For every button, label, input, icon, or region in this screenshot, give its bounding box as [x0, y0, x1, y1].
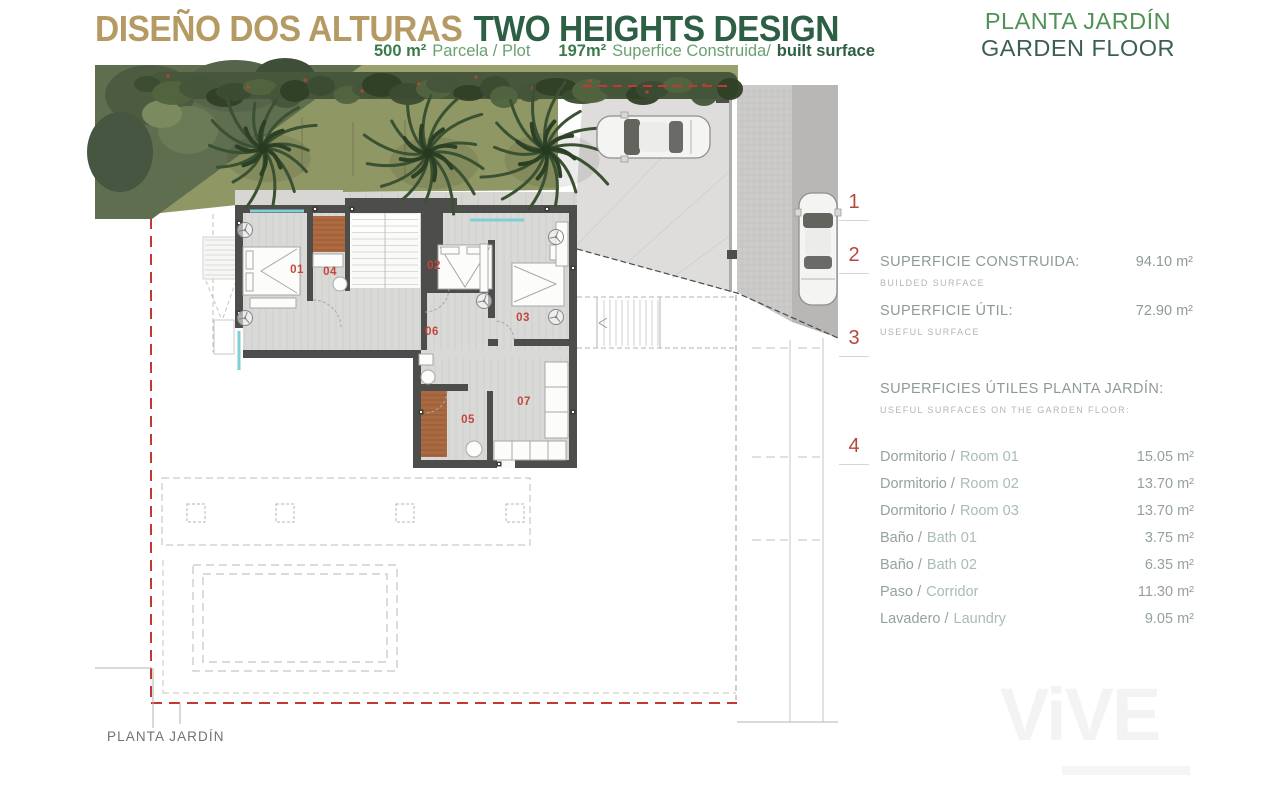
exterior-stair-right: [577, 297, 737, 348]
house: [235, 198, 577, 468]
built-surface-label: SUPERFICIE CONSTRUIDA:: [880, 254, 1080, 270]
mirror: [795, 209, 801, 216]
shower-symbol-bath-05: [421, 370, 435, 384]
floor-title-spanish: PLANTA JARDÍN: [960, 8, 1196, 35]
room-label-01: 01: [290, 264, 304, 276]
pool-dashed: [193, 565, 397, 671]
mirror: [621, 112, 628, 118]
built-area-label-en: built surface: [777, 42, 875, 60]
windshield: [624, 119, 640, 155]
useful-surfaces-section-sublabel: USEFUL SURFACES ON THE GARDEN FLOOR:: [880, 405, 1130, 415]
room-label-06: 06: [425, 326, 439, 338]
useful-surfaces-section-label: SUPERFICIES ÚTILES PLANTA JARDÍN:: [880, 381, 1164, 397]
pergola-dashed: [162, 478, 530, 545]
plot-area-value: 500 m²: [374, 42, 426, 60]
legend-marker-2: 2: [839, 244, 869, 274]
legend-marker-1: 1: [839, 191, 869, 221]
surface-row-room-03: Dormitorio /Room 0313.70 m²: [880, 503, 1194, 519]
room-label-03: 03: [516, 312, 530, 324]
surface-row-room-02: Dormitorio /Room 0213.70 m²: [880, 476, 1194, 492]
surface-row-corridor: Paso /Corridor11.30 m²: [880, 584, 1194, 600]
closet-room-02: [480, 244, 488, 292]
car-driveway: [597, 112, 710, 162]
watermark-logo: ViVE: [1000, 672, 1159, 757]
room-label-02: 02: [427, 260, 441, 272]
sink-bath-05: [419, 354, 433, 365]
surface-row-room-01: Dormitorio /Room 0115.05 m²: [880, 449, 1194, 465]
surface-row-laundry: Lavadero /Laundry9.05 m²: [880, 611, 1194, 627]
built-area-value: 197m²: [558, 42, 606, 60]
staircase: [350, 206, 420, 288]
floor-title: PLANTA JARDÍN GARDEN FLOOR: [960, 8, 1196, 62]
useful-surface-value: 72.90 m²: [1080, 303, 1193, 319]
room-label-04: 04: [323, 266, 337, 278]
bath-04-shower-floor: [312, 216, 350, 252]
windshield: [803, 213, 833, 228]
built-surface-value: 94.10 m²: [1080, 254, 1193, 270]
legend-marker-3: 3: [839, 327, 869, 357]
stair-direction-arrow: [599, 318, 607, 328]
useful-surface-sublabel: USEFUL SURFACE: [880, 327, 980, 337]
floor-title-english: GARDEN FLOOR: [960, 35, 1196, 62]
toilet-bath-04: [333, 277, 347, 291]
legend-marker-4: 4: [839, 435, 869, 465]
fence-line: [729, 88, 732, 292]
plot-area-label: Parcela / Plot: [432, 42, 530, 60]
car-street: [795, 193, 841, 305]
bath-05-floor: [417, 391, 447, 457]
bench: [250, 298, 296, 308]
built-area-label-es: Superfice Construida/: [612, 42, 771, 60]
watermark-bar: [1062, 766, 1190, 775]
surface-row-bath-01: Baño /Bath 013.75 m²: [880, 530, 1194, 546]
surface-row-bath-02: Baño /Bath 026.35 m²: [880, 557, 1194, 573]
useful-surface-label: SUPERFICIE ÚTIL:: [880, 303, 1013, 319]
mirror: [621, 156, 628, 162]
roof: [805, 228, 831, 256]
room-label-05: 05: [461, 414, 475, 426]
rear-window: [804, 256, 832, 269]
floorplan-sheet: DISEÑO DOS ALTURASTWO HEIGHTS DESIGN 500…: [0, 0, 1280, 800]
exterior-stair-left: [203, 237, 237, 354]
roof: [639, 122, 669, 152]
plan-caption: PLANTA JARDÍN: [107, 729, 225, 744]
toilet-bath-05: [466, 441, 482, 457]
plot-subtitle: 500 m²Parcela / Plot197m²Superfice Const…: [374, 42, 881, 61]
bed-room-03: [512, 263, 564, 306]
rear-window: [669, 121, 683, 153]
built-surface-sublabel: BUILDED SURFACE: [880, 278, 985, 288]
room-label-07: 07: [517, 396, 531, 408]
